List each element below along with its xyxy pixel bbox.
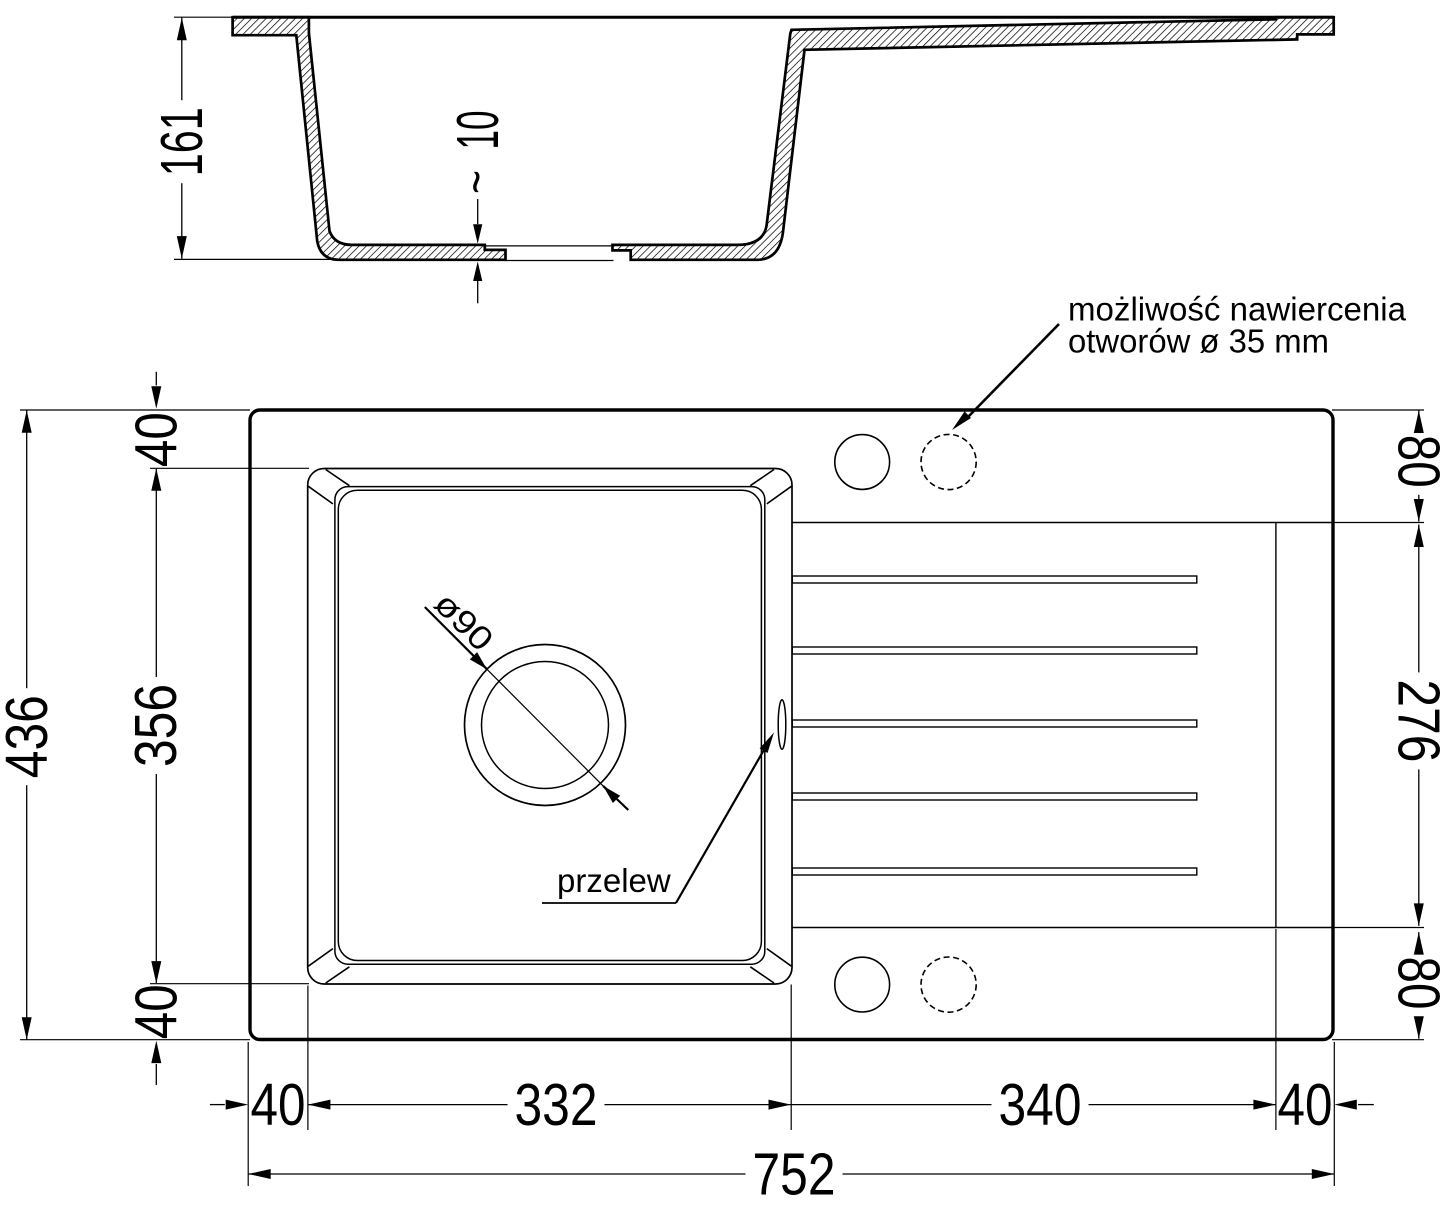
svg-text:40: 40: [124, 412, 190, 467]
svg-text:otworów ø 35 mm: otworów ø 35 mm: [1068, 324, 1329, 361]
svg-text:80: 80: [1385, 435, 1447, 488]
svg-text:10: 10: [445, 111, 511, 150]
svg-text:40: 40: [124, 984, 190, 1039]
svg-text:przelew: przelew: [557, 862, 671, 899]
svg-text:752: 752: [753, 1141, 836, 1207]
svg-text:40: 40: [1278, 1072, 1333, 1138]
svg-text:161: 161: [149, 107, 215, 176]
svg-text:276: 276: [1385, 679, 1447, 762]
svg-text:40: 40: [251, 1072, 306, 1138]
svg-text:80: 80: [1385, 957, 1447, 1010]
svg-text:~: ~: [448, 170, 504, 194]
svg-text:340: 340: [999, 1072, 1082, 1138]
svg-text:436: 436: [0, 695, 60, 778]
svg-text:332: 332: [515, 1072, 598, 1138]
svg-text:356: 356: [123, 684, 189, 767]
